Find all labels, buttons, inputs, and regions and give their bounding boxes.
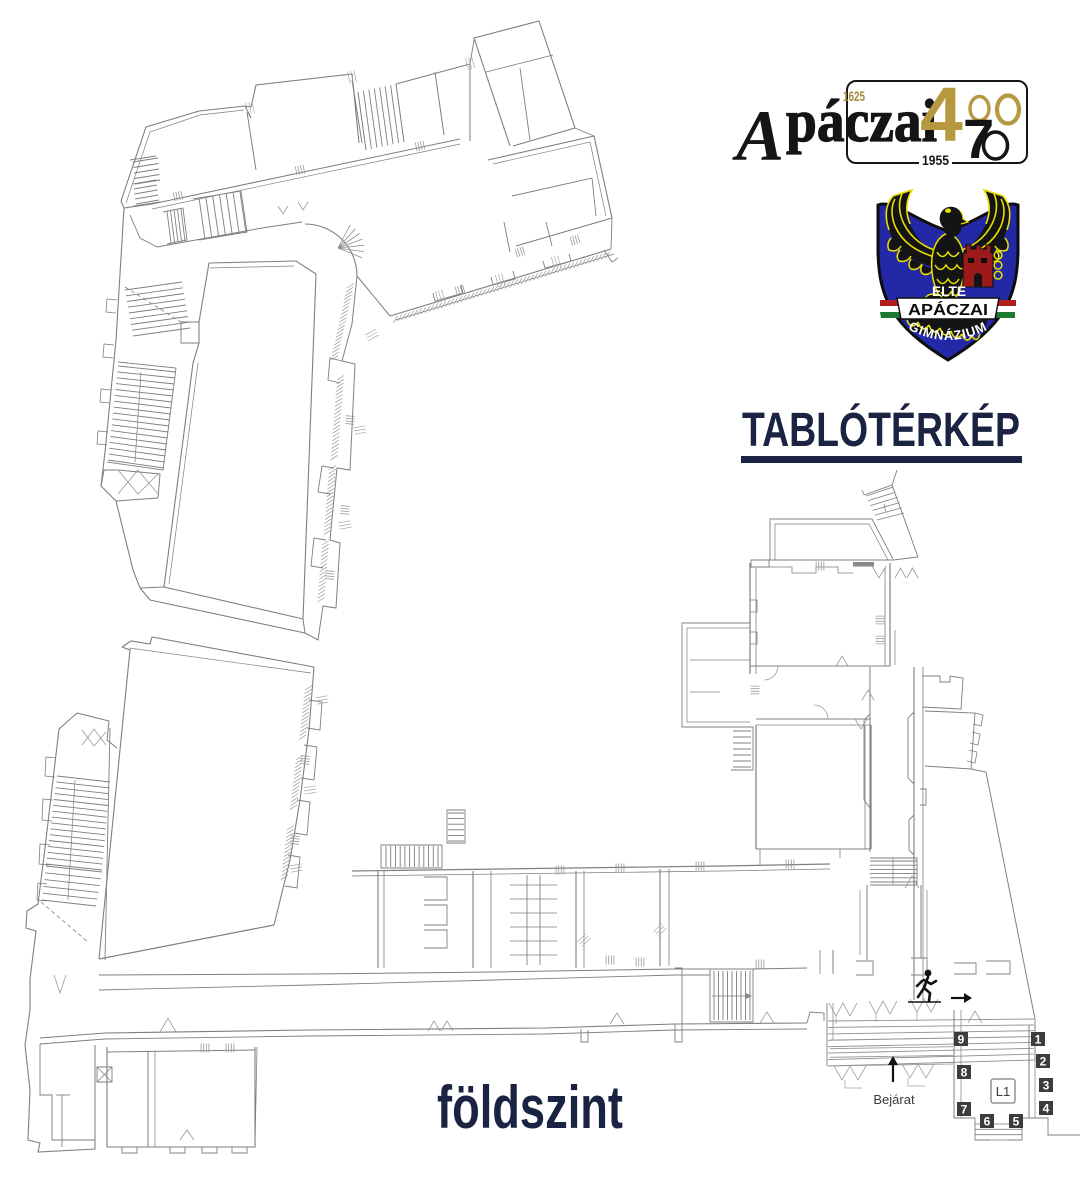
svg-text:L1: L1: [996, 1084, 1010, 1099]
svg-text:4: 4: [1043, 1102, 1050, 1116]
svg-text:földszint: földszint: [437, 1074, 623, 1141]
svg-text:TABLÓTÉRKÉP: TABLÓTÉRKÉP: [742, 402, 1020, 457]
svg-text:5: 5: [1013, 1115, 1020, 1129]
svg-text:6: 6: [984, 1115, 991, 1129]
svg-text:7: 7: [963, 107, 994, 170]
svg-text:APÁCZAI: APÁCZAI: [908, 300, 988, 319]
svg-text:A: A: [732, 96, 784, 176]
svg-text:7: 7: [961, 1103, 968, 1117]
svg-text:9: 9: [958, 1033, 965, 1047]
svg-text:1625: 1625: [843, 88, 865, 104]
svg-text:Bejárat: Bejárat: [873, 1092, 915, 1107]
svg-text:1955: 1955: [922, 152, 949, 168]
svg-text:ELTE: ELTE: [932, 283, 966, 299]
svg-text:3: 3: [1043, 1079, 1050, 1093]
svg-text:1: 1: [1035, 1033, 1042, 1047]
svg-text:8: 8: [961, 1066, 968, 1080]
svg-text:2: 2: [1040, 1055, 1047, 1069]
svg-text:4: 4: [920, 72, 963, 158]
